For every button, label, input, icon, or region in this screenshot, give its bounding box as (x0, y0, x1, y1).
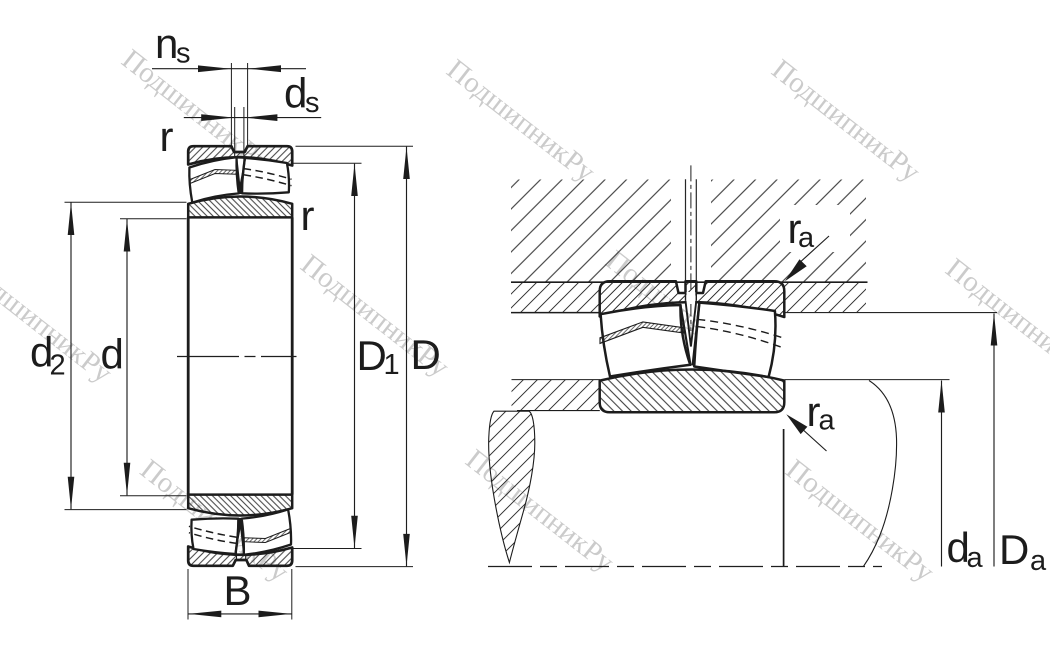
svg-text:d: d (101, 331, 124, 378)
svg-text:r: r (301, 192, 315, 239)
svg-text:d: d (284, 70, 307, 117)
svg-text:n: n (155, 20, 178, 67)
svg-text:D: D (357, 332, 387, 379)
svg-text:s: s (176, 38, 191, 70)
svg-text:s: s (305, 87, 320, 119)
svg-text:B: B (224, 567, 252, 614)
svg-text:a: a (1030, 545, 1047, 577)
svg-text:a: a (798, 222, 815, 254)
svg-text:2: 2 (50, 350, 66, 382)
svg-text:1: 1 (384, 349, 400, 381)
svg-text:a: a (819, 405, 836, 437)
svg-text:D: D (411, 331, 441, 378)
svg-text:r: r (160, 113, 174, 160)
svg-text:a: a (967, 542, 984, 574)
svg-text:D: D (999, 526, 1029, 573)
